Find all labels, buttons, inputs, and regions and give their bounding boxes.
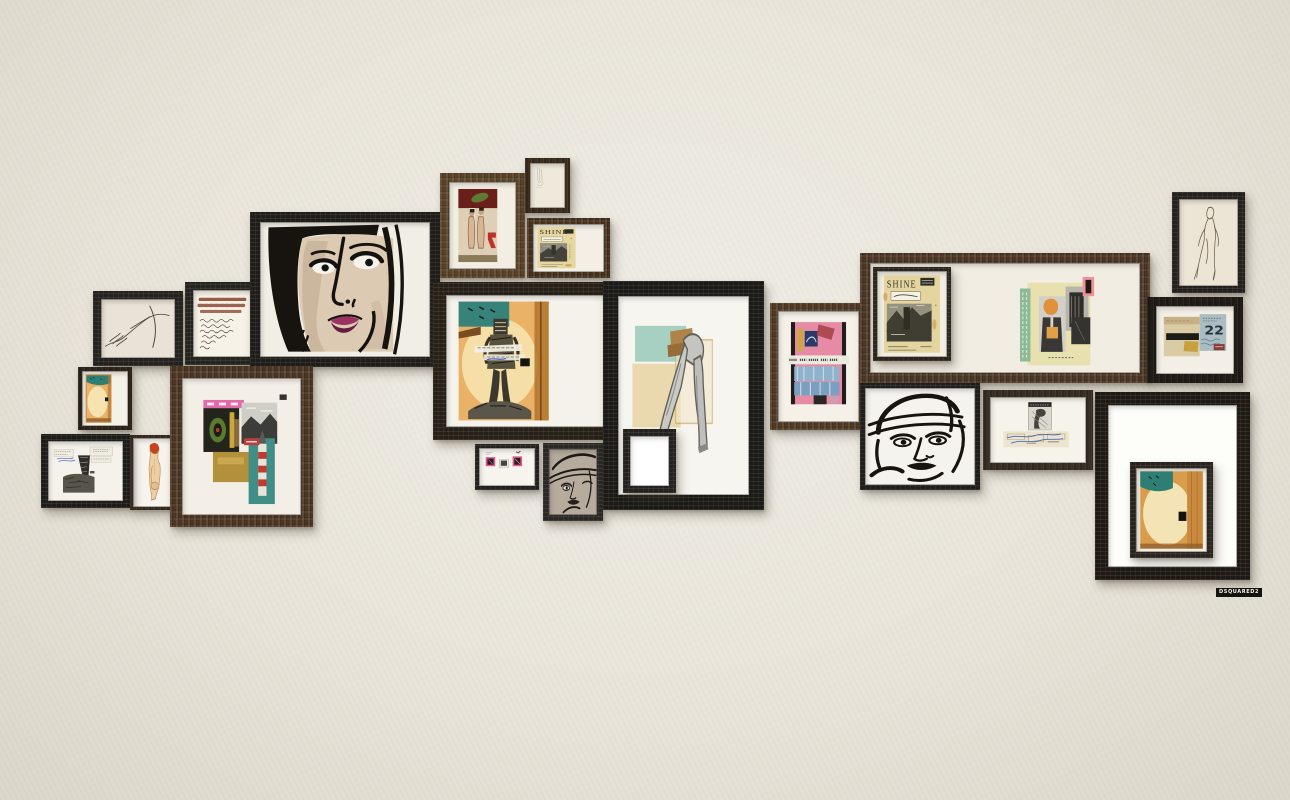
standingfigure-art <box>1179 199 1238 286</box>
frame-small-mirror <box>623 429 676 493</box>
frame-big-face <box>250 212 440 367</box>
frame-faint-sketch <box>525 158 570 213</box>
faintsketch-art <box>530 163 565 208</box>
orangecard2-art <box>1136 468 1207 552</box>
frame-rocket-collage <box>170 366 313 527</box>
frame-inner-orange <box>1130 462 1213 558</box>
brand-logo: DSQUARED2 <box>1216 588 1262 597</box>
halfface-art <box>549 449 597 515</box>
frame-figure-scribble <box>983 390 1093 470</box>
collage-fashion <box>1020 277 1115 373</box>
fashioncollage-art <box>1020 277 1115 373</box>
frame-two-nudes <box>440 173 525 278</box>
shinecover-art: SHINE <box>877 271 947 357</box>
frame-orange-card <box>78 367 132 430</box>
svg-text:22: 22 <box>1204 324 1224 338</box>
stamps-art <box>479 448 535 486</box>
frame-half-face <box>543 443 603 521</box>
frame-big-inner <box>1095 392 1250 580</box>
bigface-art <box>260 222 430 357</box>
redhead-art <box>133 438 175 507</box>
frame-figure-on-burnt <box>433 282 617 440</box>
frame-wide-composite: SHINE <box>860 253 1150 383</box>
shinepage-art: SHINE <box>533 224 604 272</box>
collage22-art: 22 <box>1156 306 1234 374</box>
frame-standing-figure <box>1172 192 1245 293</box>
frame-shine-page: SHINE <box>527 218 610 278</box>
rocketcollage-art <box>182 378 301 515</box>
frame-helmet-face <box>860 383 980 490</box>
frame-collage-22: 22 <box>1147 297 1243 383</box>
orangecard-art <box>82 371 128 426</box>
frame-handwriting <box>185 282 260 365</box>
frame-stamps <box>475 444 539 490</box>
legsphoto-art <box>48 441 123 501</box>
hands-art <box>101 299 175 358</box>
figurescribble-art <box>990 397 1086 463</box>
frame-pink-blue-collage <box>770 303 867 430</box>
helmetface-art <box>865 388 975 485</box>
pinkblue-art <box>778 311 859 422</box>
figureonburnt-art <box>446 295 604 427</box>
handwriting-art <box>193 290 252 357</box>
svg-text:SHINE: SHINE <box>539 229 568 235</box>
frame-legs-sketch <box>41 434 130 508</box>
frame-hands-sketch <box>93 291 183 366</box>
gallery-wall: DSQUARED2 SHINESHINE22 <box>0 0 1290 800</box>
twonudes-art <box>449 182 516 269</box>
svg-text:SHINE: SHINE <box>887 280 917 291</box>
frame-shine-cover: SHINE <box>873 267 951 361</box>
